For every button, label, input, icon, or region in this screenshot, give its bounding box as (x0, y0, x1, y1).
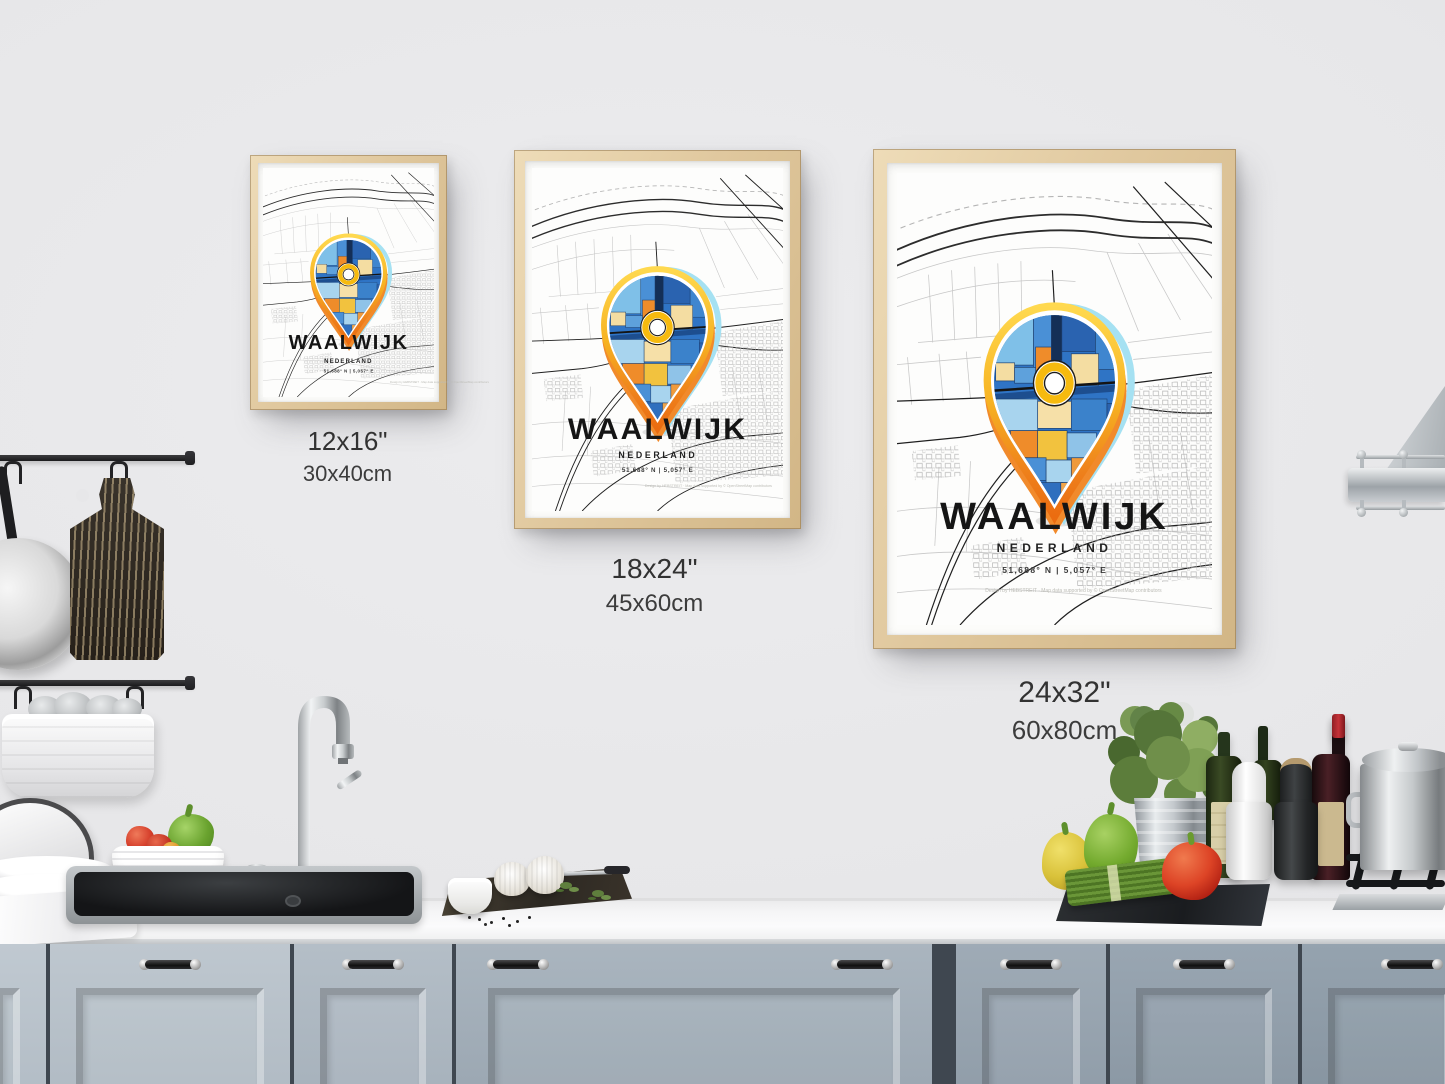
stove-edge (1332, 894, 1445, 910)
cabinet-door (956, 944, 1106, 1084)
bundle-tie (1106, 865, 1120, 902)
poster-medium: WAALWIJK NEDERLAND 51,688° N | 5,057° E … (514, 150, 801, 529)
range-hood-finial (1399, 508, 1408, 517)
poster-small: WAALWIJK NEDERLAND 51,688° N | 5,057° E … (250, 155, 447, 410)
cabinet-door-panel (76, 988, 264, 1084)
cabinet-door (1302, 944, 1445, 1084)
garlic-bulb (526, 856, 564, 894)
poster-title: WAALWIJK (532, 413, 783, 447)
size-inches: 12x16" (265, 426, 430, 457)
kitchen-cabinets (0, 944, 1445, 1084)
herb-plant-leaves (1120, 706, 1150, 736)
range-hood-band (1348, 468, 1445, 502)
cabinet-door (0, 944, 46, 1084)
cabinet-handle (1383, 958, 1441, 971)
stock-pot-knob (1398, 742, 1418, 751)
poster-frame: WAALWIJK NEDERLAND 51,688° N | 5,057° E … (514, 150, 801, 529)
stock-pot (1360, 764, 1445, 870)
kitchen-sink (66, 866, 422, 924)
cabinet-handle (1002, 958, 1060, 971)
cabinet-door-panel (0, 988, 20, 1084)
range-hood-finial (1399, 450, 1408, 459)
poster-paper: WAALWIJK NEDERLAND 51,688° N | 5,057° E … (887, 163, 1222, 635)
size-inches: 24x32" (972, 676, 1157, 710)
rail-end-cap (185, 676, 195, 690)
cabinet-handle (1175, 958, 1233, 971)
kitchen-faucet (278, 680, 368, 882)
wine-bottle-cap (1332, 714, 1345, 738)
size-cm: 45x60cm (567, 590, 742, 618)
herb-plant (1146, 736, 1190, 780)
poster-credit: Design by HEBSTREIT · Map data supported… (263, 376, 434, 394)
poster-frame: WAALWIJK NEDERLAND 51,688° N | 5,057° E … (873, 149, 1236, 649)
sink-basin (74, 872, 414, 916)
poster-paper: WAALWIJK NEDERLAND 51,688° N | 5,057° E … (258, 163, 439, 402)
poster-subtitle: NEDERLAND (532, 446, 783, 464)
size-label-12x16: 12x16" 30x40cm (265, 426, 430, 487)
size-cm: 30x40cm (265, 461, 430, 487)
poster-title: WAALWIJK (897, 496, 1212, 539)
cabinet-door (1110, 944, 1298, 1084)
poster-credit: Design by HEBSTREIT · Map data supported… (532, 479, 783, 497)
range-hood-finial (1357, 450, 1366, 459)
cabinet-handle (344, 958, 402, 971)
bell-pepper-red (1162, 842, 1222, 900)
herb-sprig (560, 882, 572, 889)
cabinet-door-panel (1136, 988, 1272, 1084)
cabinet-handle (489, 958, 547, 971)
stock-pot-lid (1362, 748, 1445, 772)
cutting-board-hole (76, 489, 89, 502)
wall-rail-bottom (0, 680, 192, 686)
poster-text: WAALWIJK NEDERLAND 51,688° N | 5,057° E … (897, 173, 1212, 625)
pinch-bowl (448, 878, 492, 914)
peppercorns (468, 916, 471, 919)
poster-paper: WAALWIJK NEDERLAND 51,688° N | 5,057° E … (525, 161, 790, 518)
poster-text: WAALWIJK NEDERLAND 51,688° N | 5,057° E … (263, 168, 434, 397)
wall-rail-top (0, 455, 192, 461)
poster-title: WAALWIJK (263, 332, 434, 355)
herb-sprig (592, 890, 604, 897)
poster-credit: Design by HEBSTREIT · Map data supported… (897, 583, 1212, 601)
cabinet-door (294, 944, 452, 1084)
knife-handle (604, 866, 630, 874)
cutting-board (70, 478, 164, 660)
pepper-grinder-white (1226, 802, 1272, 880)
poster-text: WAALWIJK NEDERLAND 51,688° N | 5,057° E … (532, 168, 783, 511)
poster-large: WAALWIJK NEDERLAND 51,688° N | 5,057° E … (873, 149, 1236, 649)
cabinet-door (50, 944, 290, 1084)
pepper-grinder-black (1274, 802, 1318, 880)
kitchen-wall-scene: WAALWIJK NEDERLAND 51,688° N | 5,057° E … (0, 0, 1445, 1084)
garlic-bulb (494, 862, 530, 896)
pepper-stem (1061, 822, 1069, 836)
cabinet-door-panel (488, 988, 900, 1084)
cabinet-drawer (456, 944, 932, 1084)
sink-drain (285, 895, 301, 907)
cabinet-door-panel (982, 988, 1080, 1084)
size-inches: 18x24" (567, 553, 742, 585)
cabinet-door-panel (320, 988, 426, 1084)
poster-frame: WAALWIJK NEDERLAND 51,688° N | 5,057° E … (250, 155, 447, 410)
cabinet-handle (833, 958, 891, 971)
poster-coordinates: 51,688° N | 5,057° E (897, 561, 1212, 579)
poster-coordinates: 51,688° N | 5,057° E (532, 462, 783, 480)
range-hood-finial (1357, 508, 1366, 517)
utensil-basket (2, 714, 154, 798)
poster-subtitle: NEDERLAND (897, 539, 1212, 557)
rail-end-cap (185, 451, 195, 465)
cabinet-handle (141, 958, 199, 971)
wine-label (1318, 802, 1344, 866)
size-label-18x24: 18x24" 45x60cm (567, 553, 742, 618)
cabinet-door-panel (1328, 988, 1445, 1084)
